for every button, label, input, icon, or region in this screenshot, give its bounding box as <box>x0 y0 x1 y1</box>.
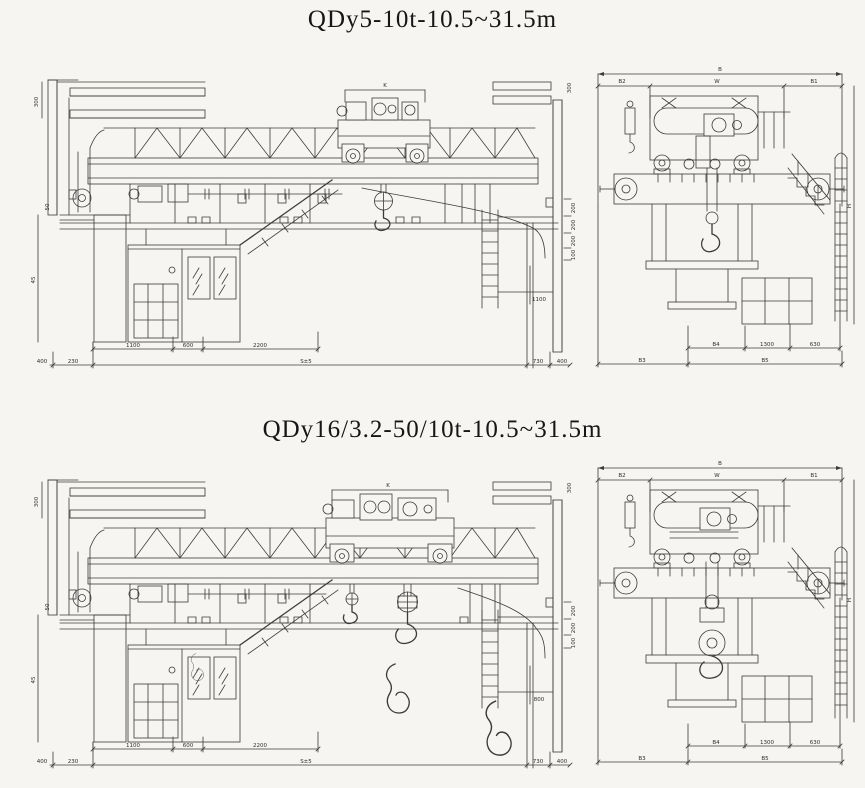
operator-cab <box>128 229 240 342</box>
dim-col: 45 <box>31 276 37 283</box>
building-column: 50 45 <box>31 603 130 742</box>
dim-ground-right: 730 <box>533 759 544 765</box>
drawing-sheet: QDy5-10t-10.5~31.5m 300 <box>0 0 865 788</box>
bridge-truss <box>104 528 535 558</box>
drawing-title-2: QDy16/3.2-50/10t-10.5~31.5m <box>0 416 865 444</box>
dim-top-3: B1 <box>810 473 817 479</box>
dim-ground-farright: 400 <box>557 759 568 765</box>
trolley: K <box>337 83 430 163</box>
dim-wall-3: 200 <box>571 235 577 246</box>
dim-cab-1: 1100 <box>126 343 140 349</box>
trolley-cross-section <box>625 96 790 174</box>
platform <box>60 584 558 629</box>
dimensions-bottom: 1100 600 2200 400 230 S±5 730 400 <box>37 623 572 768</box>
dim-bot-l1: B3 <box>638 756 646 762</box>
dim-cab-3: 2200 <box>253 743 267 749</box>
drawing-title-1: QDy5-10t-10.5~31.5m <box>0 6 865 34</box>
dim-bot-u2: 1300 <box>760 740 774 746</box>
main-girder <box>88 158 538 184</box>
end-stairs <box>788 548 830 608</box>
left-wall: 300 <box>34 480 78 615</box>
dim-bot-u2: 1300 <box>760 342 774 348</box>
dim-ledge: 50 <box>45 203 51 210</box>
trolley-cross-section <box>625 490 790 568</box>
dim-height: H <box>847 598 853 602</box>
dim-trolley-base: K <box>386 483 390 489</box>
platform <box>60 184 558 229</box>
dim-wall-top: 300 <box>34 496 40 507</box>
main-hook <box>396 584 418 644</box>
dim-cab-1: 1100 <box>126 743 140 749</box>
dim-wall-3: 100 <box>571 637 577 648</box>
dim-wall-4: 100 <box>571 249 577 260</box>
dimensions-bottom: 1100 600 2200 400 230 S±5 730 400 <box>37 223 572 368</box>
hook-assembly <box>699 562 725 678</box>
trolley: K <box>323 483 454 563</box>
under-bridge <box>646 204 758 309</box>
under-bridge <box>646 598 758 707</box>
sketch-hooks <box>191 654 511 756</box>
dim-top-1: B2 <box>618 473 625 479</box>
dim-clearance: 300 <box>567 82 573 93</box>
hook-assembly <box>702 168 720 252</box>
dim-wall-1: 200 <box>571 202 577 213</box>
dim-bot-l1: B3 <box>638 358 646 364</box>
dim-overall-width: B <box>718 67 722 73</box>
dim-ledge: 50 <box>45 603 51 610</box>
dim-wall-2: 200 <box>571 219 577 230</box>
dim-height: H <box>847 204 853 208</box>
ceiling-runway-left <box>58 82 205 118</box>
bridge-truss <box>104 128 535 158</box>
cage-ladder <box>835 547 847 718</box>
end-view-crane-2: B B2 W B1 <box>592 450 860 785</box>
front-view-crane-1: 300 50 45 <box>30 52 590 390</box>
travel-drive <box>129 584 326 603</box>
wall-ladder: 1100 <box>482 210 553 308</box>
main-girder <box>88 558 538 584</box>
dim-top-1: B2 <box>618 79 625 85</box>
front-view-crane-2: 300 50 45 <box>30 452 590 788</box>
dim-ground-left: 230 <box>68 759 79 765</box>
dim-ground-farleft: 400 <box>37 359 48 365</box>
dim-col: 45 <box>31 676 37 683</box>
bridge-cross-girder <box>600 174 844 204</box>
dim-bot-u3: 630 <box>810 342 821 348</box>
dim-cab-2: 600 <box>183 343 194 349</box>
left-wall: 300 <box>34 80 78 215</box>
dim-span: S±5 <box>300 359 312 365</box>
width-dimension: B B2 W B1 <box>596 461 844 600</box>
dim-bot-l2: B5 <box>761 358 769 364</box>
dim-ground-right: 730 <box>533 359 544 365</box>
dim-cab-3: 2200 <box>253 343 267 349</box>
dim-ladder: 1100 <box>532 297 546 303</box>
end-cab <box>742 676 812 722</box>
bridge-cross-girder <box>600 568 844 598</box>
operator-cab <box>128 629 240 742</box>
dim-trolley-base: K <box>383 83 387 89</box>
dim-cab-2: 600 <box>183 743 194 749</box>
dim-ladder: 800 <box>534 697 545 703</box>
dim-overall-width: B <box>718 461 722 467</box>
cage-ladder <box>835 153 847 321</box>
end-cab <box>742 278 812 324</box>
dim-wall-2: 200 <box>571 622 577 633</box>
dim-bot-l2: B5 <box>761 756 769 762</box>
dim-top-2: W <box>714 473 720 479</box>
dim-wall-1: 200 <box>571 605 577 616</box>
dim-bot-u3: 630 <box>810 740 821 746</box>
left-end-truck <box>69 530 104 612</box>
width-dimension: B B2 W B1 <box>596 67 844 206</box>
wall-ladder: 800 <box>482 610 553 708</box>
dim-bot-u1: B4 <box>712 740 720 746</box>
ceiling-runway-left <box>58 482 205 518</box>
dim-clearance: 300 <box>567 482 573 493</box>
dim-top-3: B1 <box>810 79 817 85</box>
building-column: 50 45 <box>31 203 130 342</box>
dim-ground-farleft: 400 <box>37 759 48 765</box>
aux-hook <box>343 584 358 623</box>
dim-ground-farright: 400 <box>557 359 568 365</box>
dim-wall-top: 300 <box>34 96 40 107</box>
dim-top-2: W <box>714 79 720 85</box>
left-end-truck <box>69 130 104 212</box>
dim-bot-u1: B4 <box>712 342 720 348</box>
dim-span: S±5 <box>300 759 312 765</box>
end-stairs <box>788 154 830 214</box>
dim-ground-left: 230 <box>68 359 79 365</box>
end-view-crane-1: B B2 W B1 <box>592 56 860 386</box>
